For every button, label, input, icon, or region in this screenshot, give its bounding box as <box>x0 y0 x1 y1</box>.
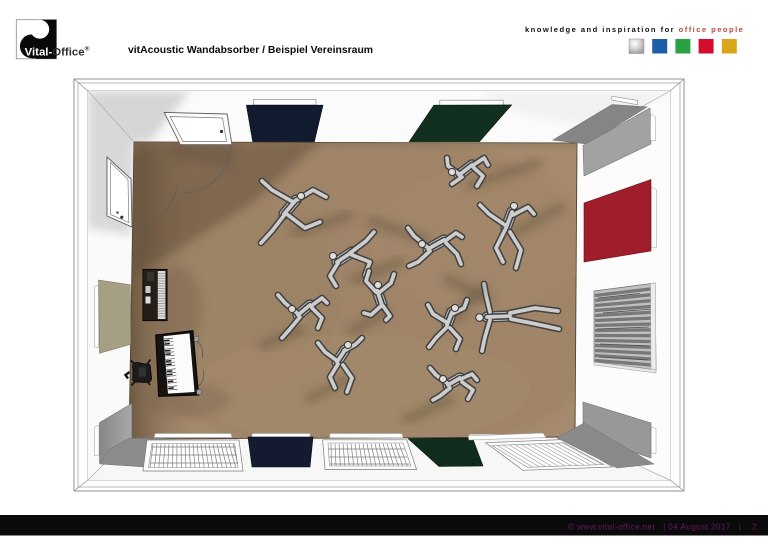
svg-text:© www.vital-office.net | 0: © www.vital-office.net | 04 August 2017 … <box>568 523 757 532</box>
svg-text:knowledge and inspiration for: knowledge and inspiration for office peo… <box>525 25 744 34</box>
svg-text:vitAcoustic Wandabsorber / Bei: vitAcoustic Wandabsorber / Beispiel Vere… <box>128 45 373 56</box>
svg-text:Vital-Office®: Vital-Office® <box>25 44 90 58</box>
